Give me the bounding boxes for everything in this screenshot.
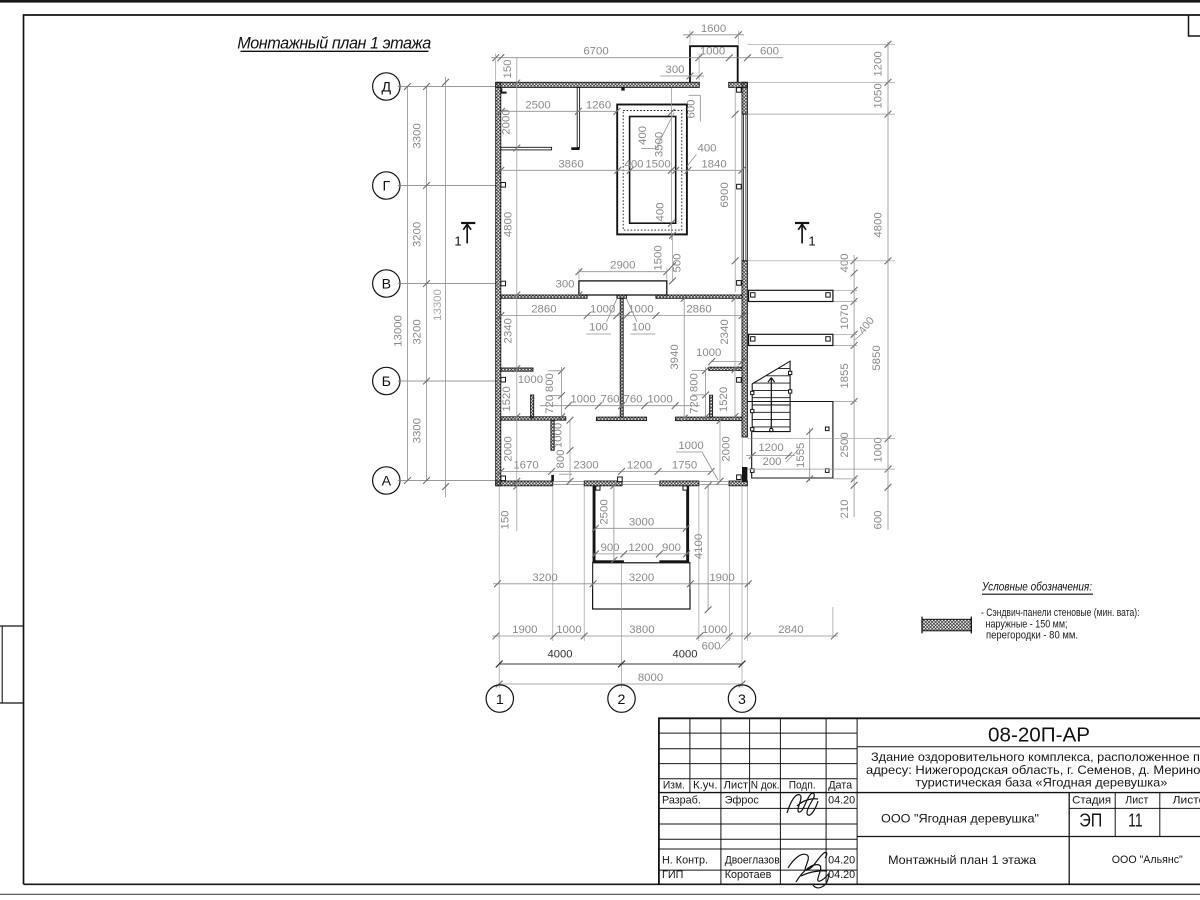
svg-text:13000: 13000 — [392, 315, 404, 347]
svg-text:2300: 2300 — [573, 460, 598, 472]
svg-text:04.20: 04.20 — [828, 795, 855, 807]
svg-text:Листов: Листов — [1173, 795, 1200, 807]
svg-text:Подп.: Подп. — [789, 780, 816, 792]
svg-text:6700: 6700 — [583, 46, 608, 58]
svg-text:1200: 1200 — [758, 442, 783, 454]
svg-text:400: 400 — [637, 126, 649, 145]
svg-text:2860: 2860 — [686, 304, 711, 316]
svg-text:5850: 5850 — [871, 345, 883, 370]
svg-text:1855: 1855 — [839, 363, 851, 388]
svg-text:Дата: Дата — [828, 780, 852, 792]
svg-text:Монтажный план 1 этажа: Монтажный план 1 этажа — [237, 34, 431, 52]
svg-text:Лист: Лист — [1125, 795, 1148, 807]
svg-text:300: 300 — [555, 279, 574, 291]
svg-text:6900: 6900 — [719, 182, 731, 207]
svg-text:Двоеглазов: Двоеглазов — [725, 855, 780, 867]
svg-text:Разраб.: Разраб. — [662, 795, 701, 807]
svg-text:Здание оздоровительного компле: Здание оздоровительного комплекса, распо… — [871, 751, 1200, 764]
svg-text:Лист: Лист — [724, 780, 749, 792]
svg-text:760: 760 — [600, 394, 619, 406]
svg-text:1000: 1000 — [570, 394, 595, 406]
svg-text:1000: 1000 — [873, 437, 885, 462]
svg-text:1070: 1070 — [839, 304, 851, 329]
svg-text:720: 720 — [689, 395, 701, 414]
svg-text:туристическая база «Ягодная де: туристическая база «Ягодная деревушка» — [915, 777, 1167, 790]
svg-text:1500: 1500 — [645, 158, 670, 170]
svg-text:ООО "Альянс": ООО "Альянс" — [1112, 854, 1183, 866]
svg-text:1520: 1520 — [501, 386, 513, 411]
svg-text:150: 150 — [502, 59, 514, 78]
svg-text:3200: 3200 — [629, 572, 654, 584]
svg-text:1000: 1000 — [556, 624, 581, 636]
svg-text:2840: 2840 — [778, 624, 803, 636]
svg-text:400: 400 — [624, 158, 643, 170]
svg-text:1260: 1260 — [586, 99, 611, 111]
svg-text:1670: 1670 — [513, 460, 538, 472]
svg-text:1: 1 — [454, 234, 461, 249]
svg-text:Коротаев: Коротаев — [725, 869, 772, 881]
svg-text:400: 400 — [697, 143, 716, 155]
svg-text:400: 400 — [839, 253, 851, 272]
svg-text:1520: 1520 — [718, 387, 730, 412]
svg-text:600: 600 — [686, 99, 698, 118]
svg-text:800: 800 — [689, 373, 701, 392]
svg-text:К.уч.: К.уч. — [693, 780, 718, 792]
svg-text:1000: 1000 — [702, 624, 727, 636]
svg-text:1200: 1200 — [627, 460, 652, 472]
svg-text:3: 3 — [738, 692, 746, 708]
svg-text:3300: 3300 — [411, 418, 423, 443]
svg-text:200: 200 — [762, 456, 781, 468]
svg-text:900: 900 — [662, 542, 681, 554]
svg-text:3940: 3940 — [669, 344, 681, 369]
svg-text:1900: 1900 — [709, 572, 734, 584]
svg-text:1050: 1050 — [873, 83, 885, 108]
svg-text:100: 100 — [589, 322, 608, 334]
svg-text:ЭП: ЭП — [1079, 811, 1102, 831]
svg-text:Г: Г — [382, 179, 390, 195]
svg-text:Н. Контр.: Н. Контр. — [662, 855, 708, 867]
svg-text:500: 500 — [672, 253, 684, 272]
svg-text:13300: 13300 — [432, 289, 444, 321]
svg-text:600: 600 — [760, 46, 779, 58]
svg-text:Монтажный план 1 этажа: Монтажный план 1 этажа — [888, 853, 1036, 867]
svg-text:8000: 8000 — [638, 672, 663, 684]
svg-text:1: 1 — [808, 234, 815, 249]
svg-text:300: 300 — [665, 64, 684, 76]
svg-text:N док.: N док. — [751, 780, 780, 792]
svg-text:600: 600 — [701, 641, 720, 653]
svg-text:210: 210 — [839, 499, 851, 518]
svg-text:3000: 3000 — [629, 516, 654, 528]
svg-text:4800: 4800 — [873, 212, 885, 237]
svg-text:600: 600 — [873, 510, 885, 529]
svg-text:2900: 2900 — [610, 260, 635, 272]
svg-text:3500: 3500 — [654, 132, 666, 157]
svg-text:2340: 2340 — [719, 319, 731, 344]
svg-text:3200: 3200 — [532, 572, 557, 584]
svg-text:04.20: 04.20 — [828, 855, 855, 867]
svg-text:800: 800 — [544, 373, 556, 392]
svg-text:1200: 1200 — [873, 51, 885, 76]
svg-text:2500: 2500 — [525, 99, 550, 111]
svg-text:4000: 4000 — [548, 649, 573, 661]
svg-text:ООО "Ягодная деревушка": ООО "Ягодная деревушка" — [881, 811, 1039, 825]
svg-text:800: 800 — [555, 449, 567, 468]
svg-text:1200: 1200 — [628, 542, 653, 554]
svg-text:2500: 2500 — [599, 499, 611, 524]
svg-text:100: 100 — [632, 322, 651, 334]
svg-text:3860: 3860 — [558, 158, 583, 170]
svg-text:400: 400 — [654, 202, 666, 221]
svg-text:2340: 2340 — [503, 318, 515, 343]
svg-text:1000: 1000 — [590, 304, 615, 316]
svg-text:1840: 1840 — [701, 158, 726, 170]
svg-text:1900: 1900 — [512, 624, 537, 636]
svg-text:1000: 1000 — [518, 374, 543, 386]
svg-text:900: 900 — [600, 542, 619, 554]
svg-text:1000: 1000 — [696, 347, 721, 359]
svg-text:2: 2 — [618, 692, 626, 708]
svg-text:1500: 1500 — [653, 245, 665, 270]
svg-text:1: 1 — [496, 692, 504, 708]
svg-text:1750: 1750 — [672, 460, 697, 472]
svg-text:Д: Д — [381, 80, 391, 96]
svg-text:Эфрос: Эфрос — [725, 795, 760, 807]
svg-text:08-20П-АР: 08-20П-АР — [988, 725, 1090, 747]
svg-text:4800: 4800 — [503, 212, 515, 237]
svg-text:Стадия: Стадия — [1072, 795, 1111, 807]
svg-text:1000: 1000 — [678, 440, 703, 452]
svg-text:3800: 3800 — [629, 624, 654, 636]
svg-text:Условные обозначения:: Условные обозначения: — [981, 580, 1092, 594]
svg-text:760: 760 — [623, 394, 642, 406]
svg-text:- Сэндвич-панели стеновые (мин: - Сэндвич-панели стеновые (мин. вата): — [981, 607, 1140, 619]
svg-text:1000: 1000 — [553, 423, 565, 448]
svg-text:2000: 2000 — [501, 109, 513, 134]
svg-text:1600: 1600 — [701, 23, 726, 35]
svg-text:1000: 1000 — [700, 46, 725, 58]
svg-text:А: А — [382, 474, 392, 490]
svg-text:2000: 2000 — [503, 436, 515, 461]
svg-text:наружные - 150 мм;: наружные - 150 мм; — [986, 618, 1068, 630]
svg-text:2860: 2860 — [531, 304, 556, 316]
svg-text:1000: 1000 — [628, 304, 653, 316]
svg-text:3200: 3200 — [411, 319, 423, 344]
svg-text:В: В — [382, 277, 391, 293]
svg-text:11: 11 — [1128, 811, 1143, 831]
svg-text:3300: 3300 — [411, 123, 423, 148]
svg-text:150: 150 — [500, 510, 512, 529]
svg-text:ГИП: ГИП — [662, 869, 683, 881]
svg-text:Б: Б — [382, 374, 391, 390]
svg-text:1555: 1555 — [795, 443, 807, 468]
svg-text:перегородки - 80 мм.: перегородки - 80 мм. — [986, 630, 1078, 642]
svg-text:3200: 3200 — [411, 222, 423, 247]
svg-text:2500: 2500 — [839, 432, 851, 457]
svg-text:1000: 1000 — [647, 394, 672, 406]
svg-text:4000: 4000 — [673, 649, 698, 661]
svg-text:2000: 2000 — [721, 436, 733, 461]
svg-text:04.20: 04.20 — [828, 869, 855, 881]
svg-text:адресу: Нижегородская область,: адресу: Нижегородская область, г. Семено… — [866, 764, 1200, 777]
svg-text:720: 720 — [544, 395, 556, 414]
svg-text:Изм.: Изм. — [663, 780, 685, 792]
